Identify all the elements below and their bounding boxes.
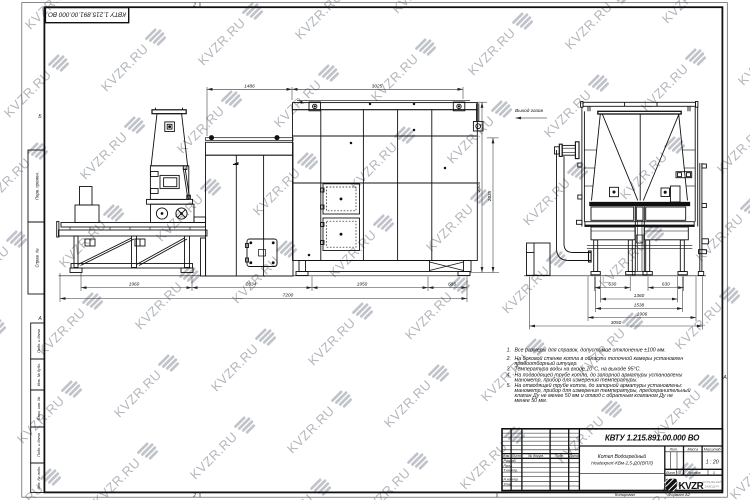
svg-text:Разраб.: Разраб.	[504, 459, 517, 463]
svg-text:5.: 5.	[507, 383, 511, 389]
svg-text:3050: 3050	[611, 320, 622, 325]
svg-text:685: 685	[448, 282, 456, 287]
svg-text:Heatexpert-КВм-2,5-ДО(ВПЛ): Heatexpert-КВм-2,5-ДО(ВПЛ)	[591, 461, 653, 466]
svg-text:Котел Водогрейный: Котел Водогрейный	[598, 453, 647, 460]
svg-text:2905: 2905	[476, 181, 481, 193]
svg-text:2: 2	[192, 3, 196, 9]
svg-text:2.: 2.	[506, 356, 511, 362]
svg-text:Т.контр.: Т.контр.	[504, 469, 519, 473]
svg-text:А: А	[722, 375, 727, 381]
svg-text:Взам. инв. №: Взам. инв. №	[37, 397, 41, 420]
svg-text:Справ. №: Справ. №	[35, 248, 40, 267]
svg-text:Перв. примен.: Перв. примен.	[35, 172, 40, 200]
svg-text:2335: 2335	[487, 190, 492, 202]
svg-text:Листов: Листов	[686, 471, 700, 475]
svg-text:Изм.: Изм.	[503, 454, 511, 458]
svg-text:КВТУ 1.215.891.00.000 ВО: КВТУ 1.215.891.00.000 ВО	[48, 11, 126, 18]
svg-text:Выход газов: Выход газов	[515, 108, 543, 114]
svg-text:3025: 3025	[372, 84, 383, 89]
svg-text:7200: 7200	[283, 293, 294, 298]
svg-text:Лист: Лист	[511, 454, 521, 458]
svg-text:1: 1	[679, 471, 681, 475]
svg-text:КВТУ 1.215.891.00.000 ВО: КВТУ 1.215.891.00.000 ВО	[605, 434, 700, 443]
svg-text:КОТЕЛЬНЫЙ: КОТЕЛЬНЫЙ	[703, 480, 722, 484]
svg-text:Масса: Масса	[687, 447, 698, 451]
svg-text:Подп.: Подп.	[555, 454, 565, 458]
svg-text:Инв. № дубл.: Инв. № дубл.	[37, 363, 41, 386]
svg-text:2: 2	[192, 493, 196, 499]
svg-text:Все размеры для справок, допус: Все размеры для справок, допустимое откл…	[515, 348, 666, 354]
svg-text:1360: 1360	[634, 293, 645, 298]
svg-text:1.: 1.	[507, 348, 511, 354]
svg-text:Масштаб: Масштаб	[704, 447, 722, 451]
svg-text:Дата: Дата	[568, 454, 578, 458]
svg-text:Пров.: Пров.	[504, 464, 513, 468]
svg-text:1950: 1950	[357, 282, 368, 287]
svg-text:Лит.: Лит.	[669, 447, 678, 451]
svg-text:630: 630	[662, 282, 670, 287]
svg-text:Н.контр.: Н.контр.	[504, 478, 519, 482]
svg-text:1: 1	[713, 471, 715, 475]
svg-text:№ докум.: № докум.	[528, 454, 544, 458]
svg-text:1906: 1906	[637, 312, 648, 317]
svg-text:1486: 1486	[244, 84, 255, 89]
svg-text:1960: 1960	[129, 282, 140, 287]
svg-text:Формат А2: Формат А2	[668, 492, 691, 497]
svg-text:4.: 4.	[507, 372, 511, 378]
svg-text:А: А	[37, 316, 42, 322]
svg-text:Утв.: Утв.	[504, 482, 512, 486]
svg-text:ЗАВОД РУ: ЗАВОД РУ	[705, 485, 720, 489]
svg-text:Инв. № подл.: Инв. № подл.	[37, 466, 41, 490]
svg-text:1538: 1538	[634, 303, 645, 308]
svg-text:Подп. и дата: Подп. и дата	[37, 329, 41, 353]
svg-text:Копировал: Копировал	[615, 492, 636, 497]
svg-text:Лист: Лист	[665, 471, 675, 475]
svg-text:2034: 2034	[245, 282, 257, 287]
svg-text:менее 50 мм.: менее 50 мм.	[515, 398, 548, 404]
svg-text:Подп. и дата: Подп. и дата	[37, 433, 41, 457]
svg-text:630: 630	[608, 282, 616, 287]
svg-text:KVZR: KVZR	[679, 481, 704, 492]
svg-text:1 : 20: 1 : 20	[706, 460, 719, 466]
